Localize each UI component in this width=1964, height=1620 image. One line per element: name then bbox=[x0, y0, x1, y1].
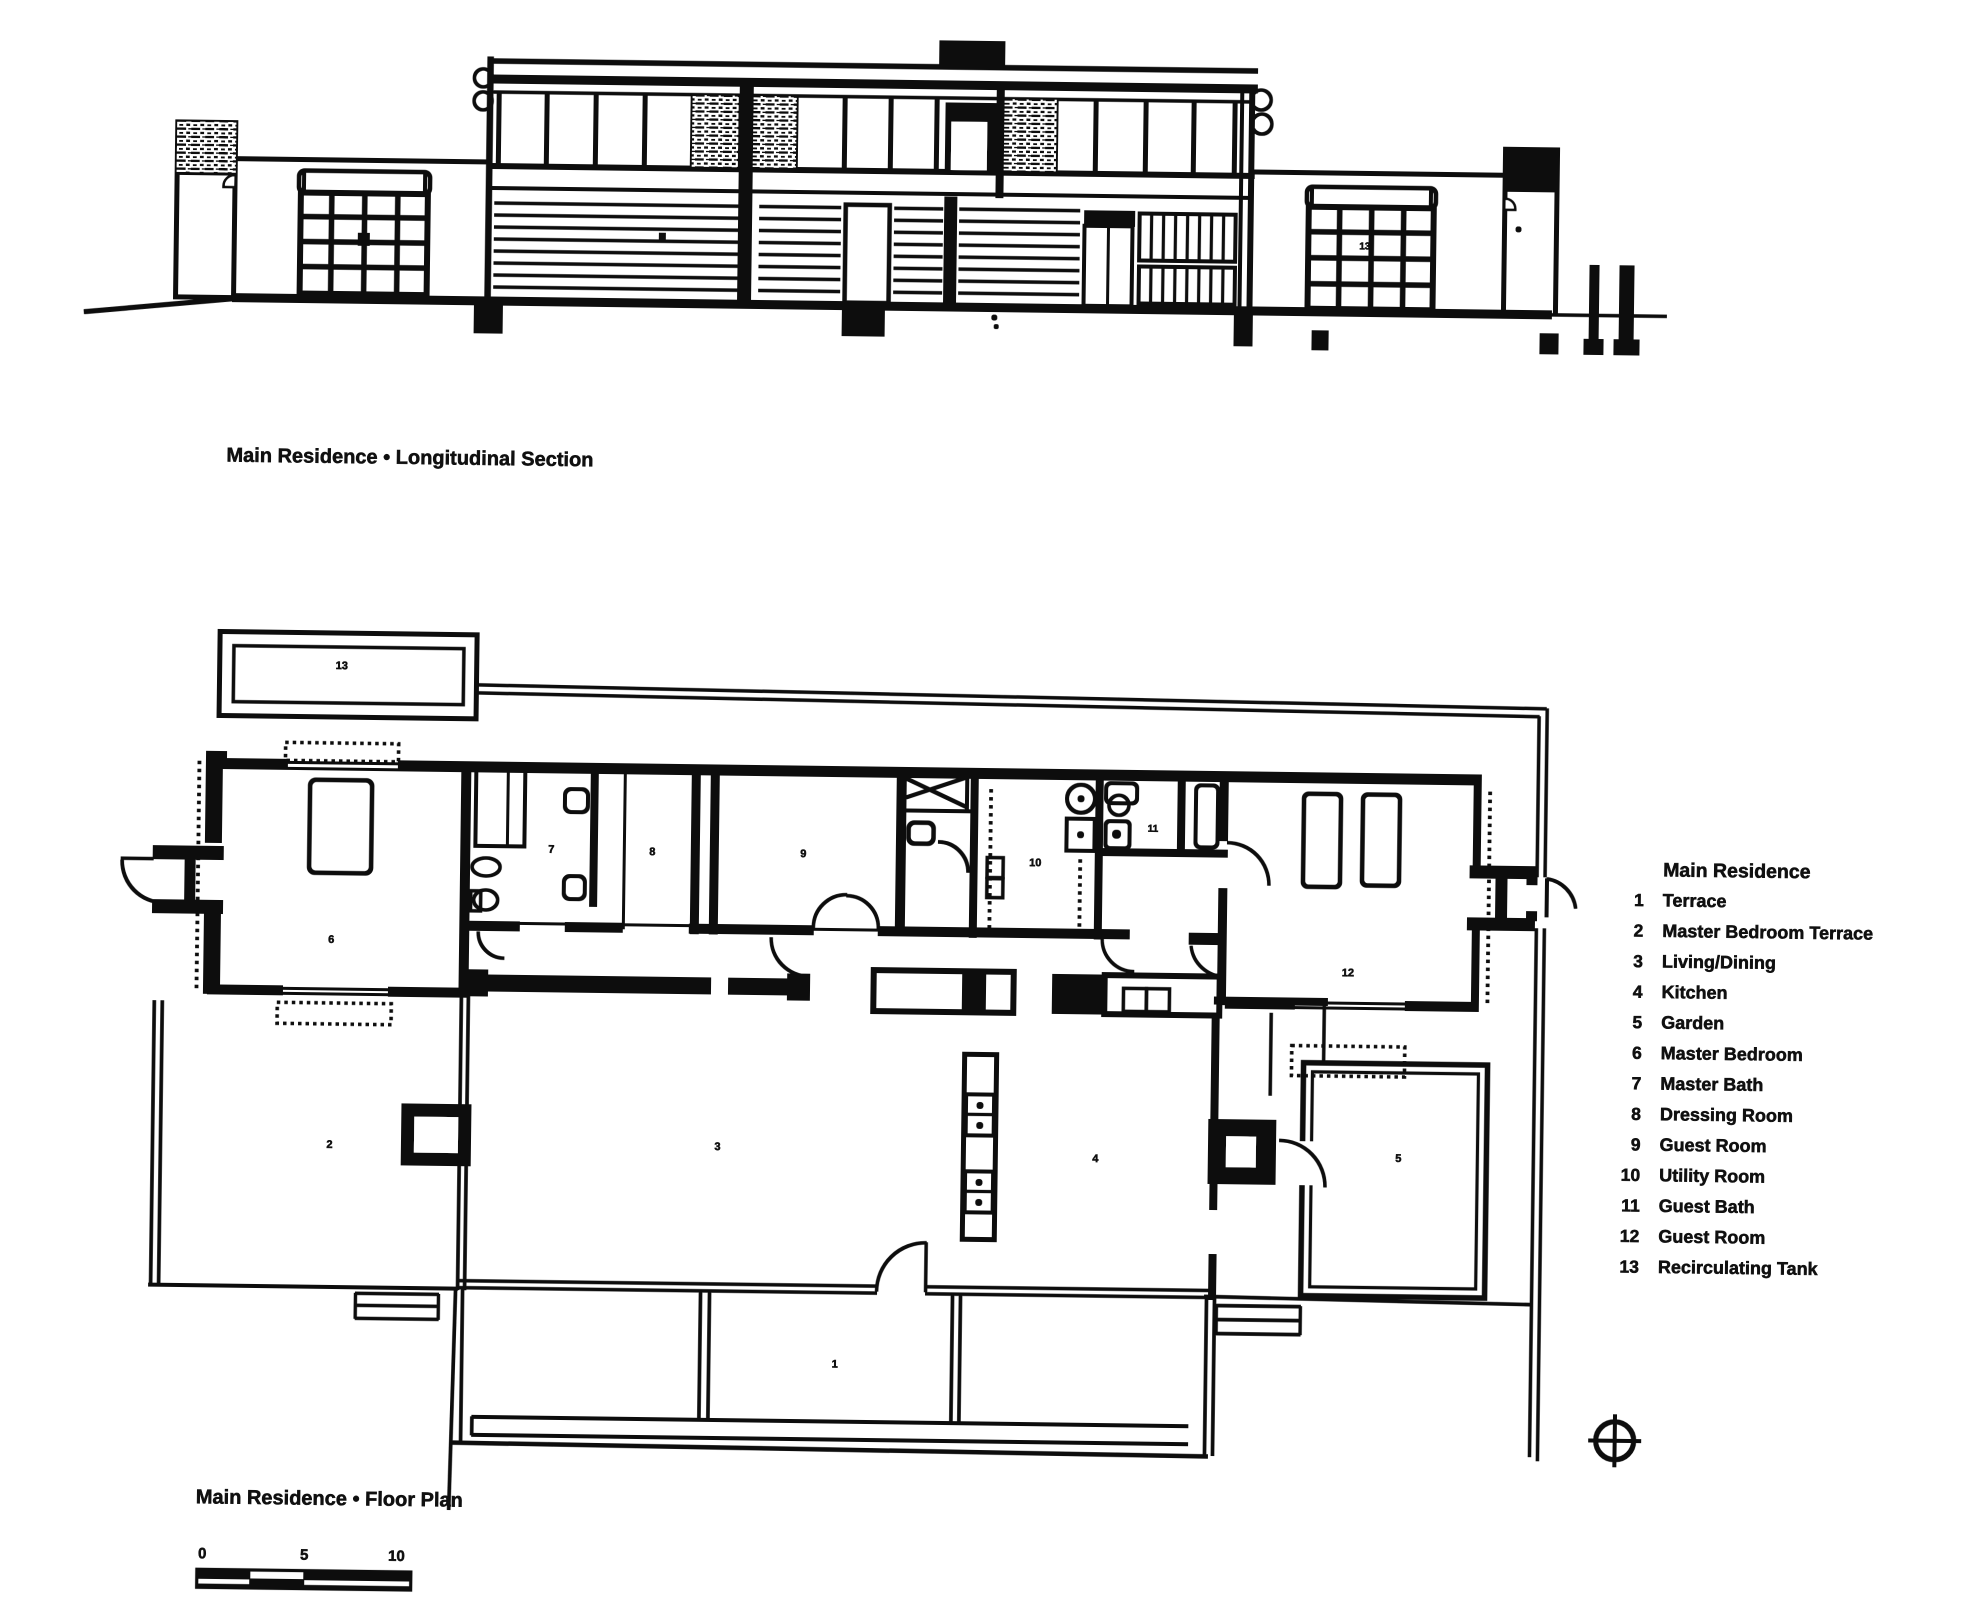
svg-text:Main Residence • Floor Plan: Main Residence • Floor Plan bbox=[196, 1486, 463, 1511]
svg-text:7: 7 bbox=[1631, 1073, 1641, 1093]
svg-text:Master Bedroom: Master Bedroom bbox=[1661, 1043, 1803, 1065]
svg-text:13: 13 bbox=[1359, 241, 1371, 252]
svg-text:10: 10 bbox=[1029, 857, 1041, 869]
svg-text:5: 5 bbox=[1395, 1153, 1401, 1165]
svg-text:Master Bath: Master Bath bbox=[1660, 1074, 1763, 1095]
svg-text:13: 13 bbox=[336, 660, 348, 672]
svg-text:5: 5 bbox=[300, 1547, 309, 1564]
svg-text:Guest Bath: Guest Bath bbox=[1659, 1196, 1755, 1217]
svg-text:1: 1 bbox=[1634, 890, 1644, 910]
svg-text:11: 11 bbox=[1148, 824, 1159, 835]
svg-text:3: 3 bbox=[1633, 951, 1643, 971]
svg-text:12: 12 bbox=[1620, 1226, 1640, 1246]
svg-text:8: 8 bbox=[649, 846, 655, 858]
svg-text:10: 10 bbox=[388, 1548, 405, 1565]
svg-text:11: 11 bbox=[1621, 1195, 1640, 1215]
svg-text:Utility Room: Utility Room bbox=[1659, 1165, 1765, 1186]
svg-text:Guest Room: Guest Room bbox=[1658, 1226, 1765, 1247]
svg-text:Recirculating Tank: Recirculating Tank bbox=[1658, 1257, 1819, 1279]
svg-text:Guest Room: Guest Room bbox=[1659, 1135, 1766, 1156]
svg-text:12: 12 bbox=[1342, 967, 1354, 979]
svg-text:Kitchen: Kitchen bbox=[1661, 982, 1727, 1003]
svg-text:Terrace: Terrace bbox=[1663, 890, 1727, 911]
svg-text:4: 4 bbox=[1633, 982, 1643, 1002]
svg-text:8: 8 bbox=[1631, 1104, 1641, 1124]
svg-text:2: 2 bbox=[326, 1139, 332, 1151]
svg-text:6: 6 bbox=[1632, 1043, 1642, 1063]
svg-text:2: 2 bbox=[1633, 921, 1643, 941]
svg-text:Main Residence: Main Residence bbox=[1663, 859, 1811, 883]
svg-text:9: 9 bbox=[800, 848, 806, 860]
svg-text:Living/Dining: Living/Dining bbox=[1662, 951, 1776, 972]
svg-text:3: 3 bbox=[714, 1141, 720, 1153]
svg-text:0: 0 bbox=[198, 1545, 207, 1562]
svg-text:13: 13 bbox=[1619, 1256, 1639, 1276]
svg-text:7: 7 bbox=[548, 844, 554, 856]
svg-text:1: 1 bbox=[832, 1359, 838, 1371]
svg-text:9: 9 bbox=[1631, 1134, 1641, 1154]
svg-text:5: 5 bbox=[1632, 1012, 1642, 1032]
svg-text:Master Bedroom Terrace: Master Bedroom Terrace bbox=[1662, 921, 1873, 944]
svg-text:6: 6 bbox=[328, 934, 334, 946]
svg-text:Dressing Room: Dressing Room bbox=[1660, 1104, 1793, 1126]
svg-text:4: 4 bbox=[1092, 1153, 1099, 1165]
svg-text:10: 10 bbox=[1621, 1165, 1641, 1185]
svg-text:Garden: Garden bbox=[1661, 1013, 1724, 1034]
